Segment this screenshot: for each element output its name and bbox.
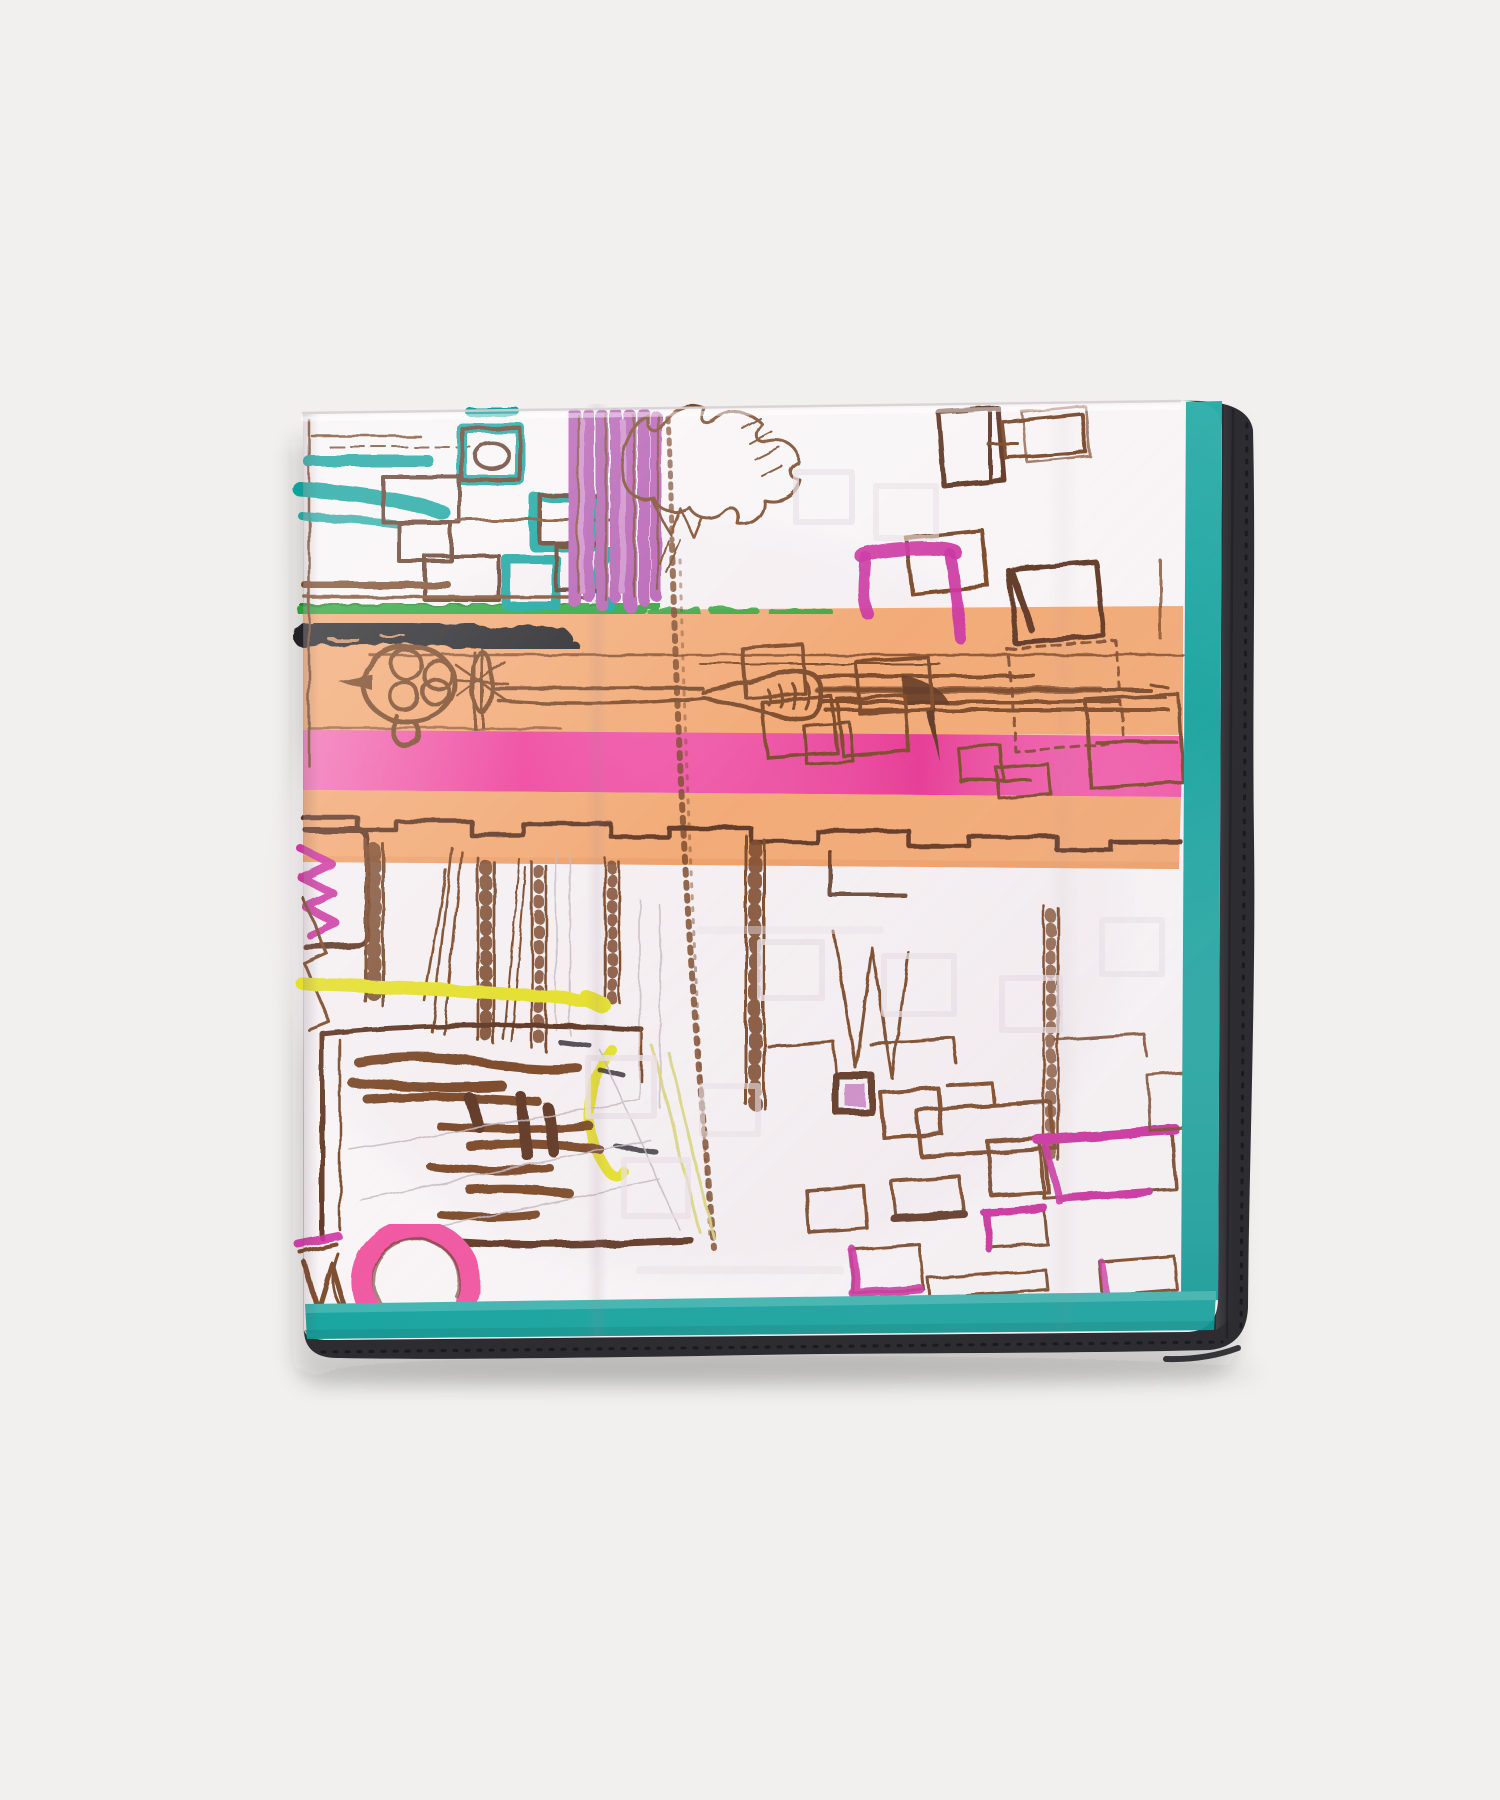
scarf-illustration: [0, 0, 1500, 1800]
fabric-lighting: [303, 401, 1222, 1340]
product-photo: [0, 0, 1500, 1800]
fold-crease: [586, 404, 608, 1336]
